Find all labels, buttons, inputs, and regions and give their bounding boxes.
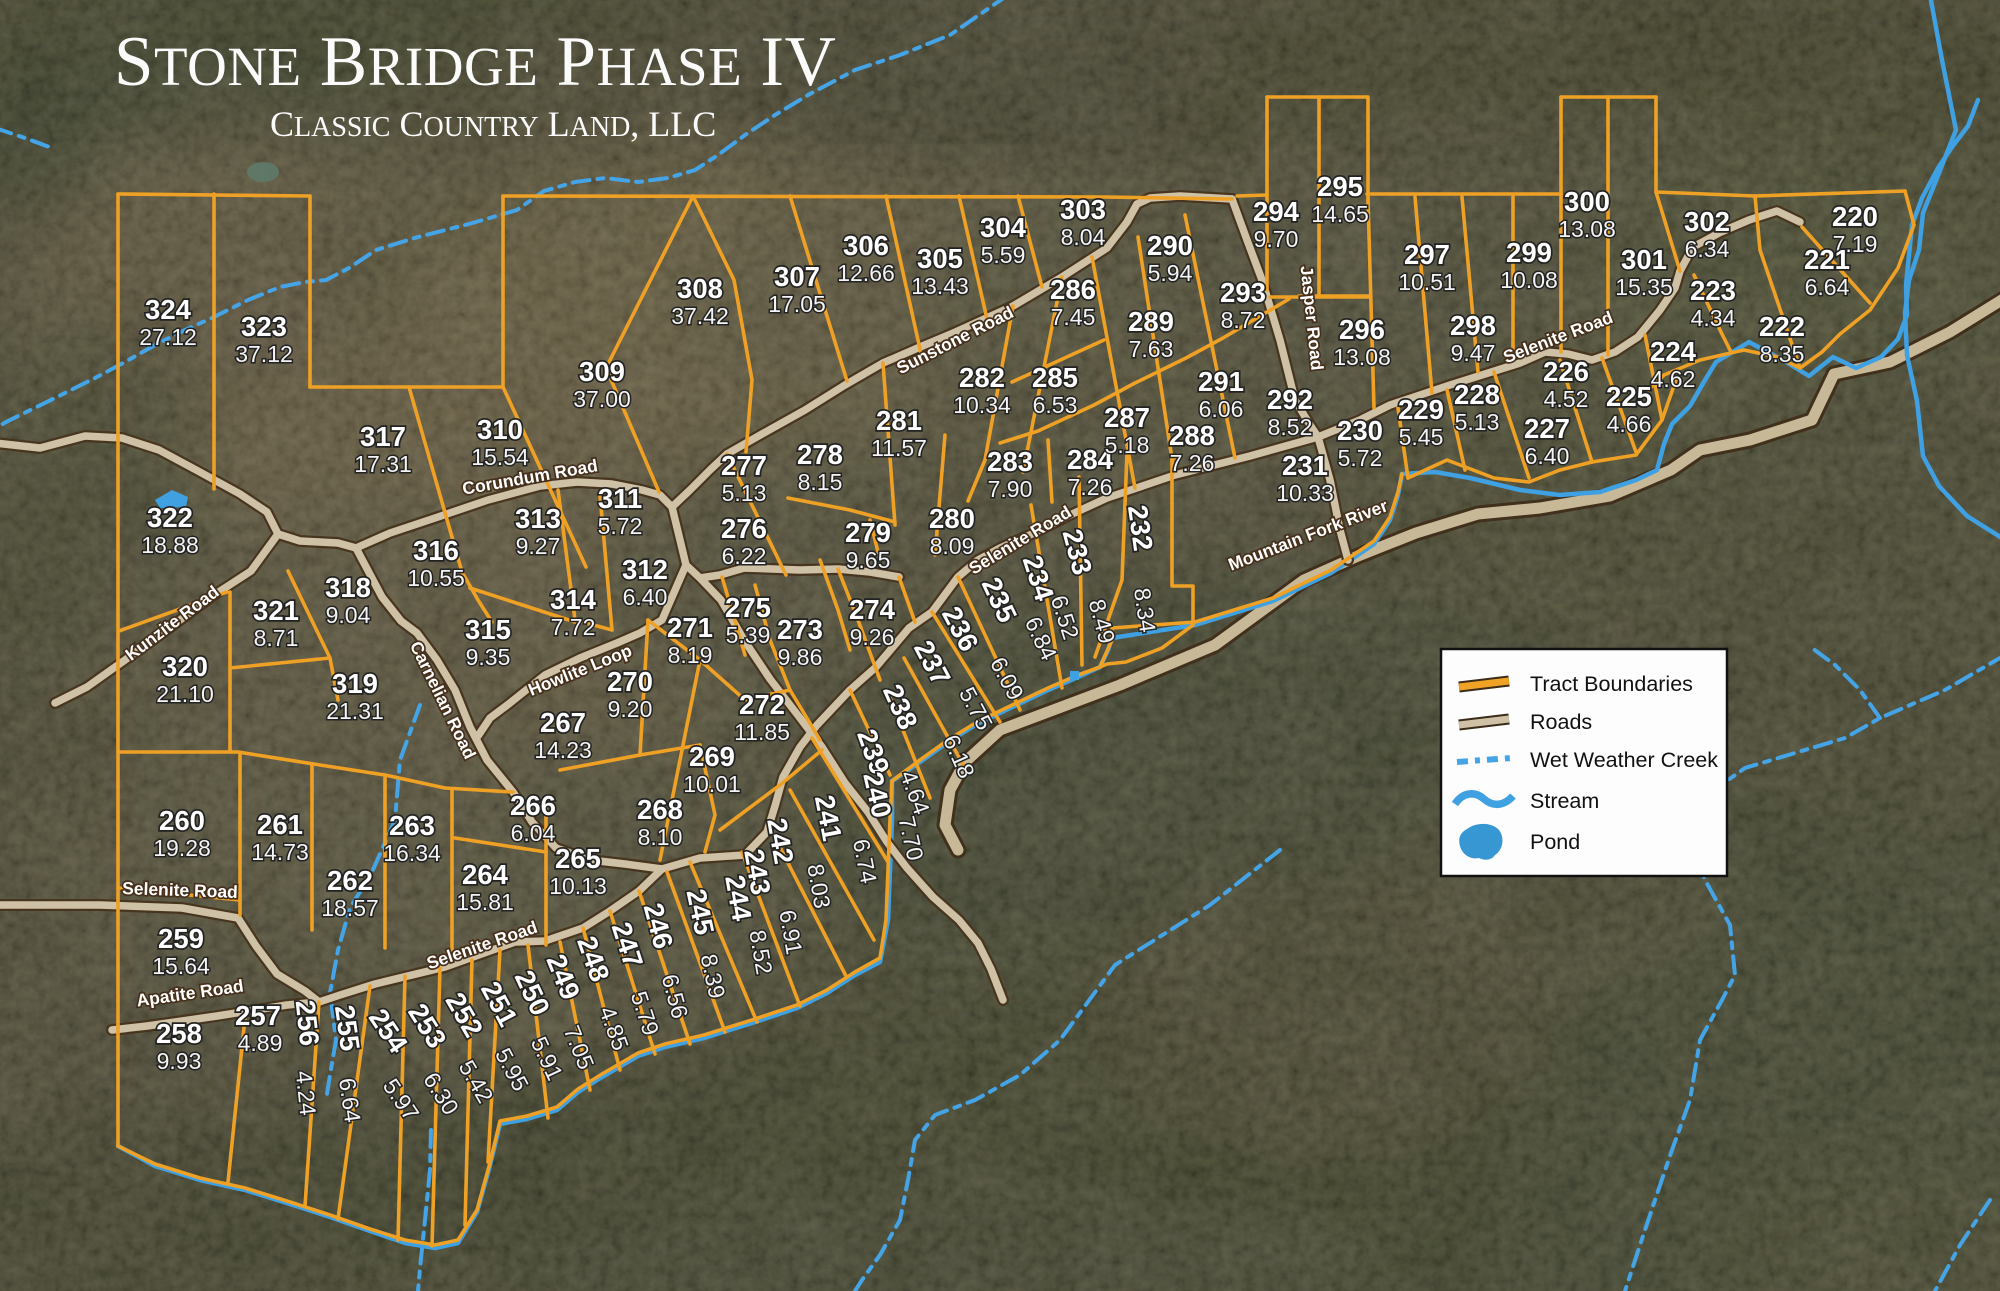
svg-text:260: 260 — [159, 805, 205, 836]
svg-text:304: 304 — [980, 212, 1027, 243]
svg-text:278: 278 — [797, 439, 843, 470]
svg-text:15.54: 15.54 — [471, 444, 529, 470]
svg-text:317: 317 — [360, 421, 406, 452]
svg-text:232: 232 — [1122, 503, 1159, 553]
svg-text:273: 273 — [777, 614, 823, 645]
svg-text:272: 272 — [739, 689, 785, 720]
svg-text:312: 312 — [622, 554, 668, 585]
svg-text:313: 313 — [515, 503, 561, 534]
svg-text:305: 305 — [917, 243, 963, 274]
svg-text:17.05: 17.05 — [768, 291, 826, 317]
svg-text:323: 323 — [241, 311, 287, 342]
svg-text:9.35: 9.35 — [466, 644, 511, 670]
svg-text:15.35: 15.35 — [1615, 274, 1673, 300]
svg-text:Selenite Road: Selenite Road — [122, 878, 238, 902]
svg-text:13.08: 13.08 — [1558, 216, 1616, 242]
svg-text:9.26: 9.26 — [850, 624, 895, 650]
svg-text:266: 266 — [510, 790, 556, 821]
svg-text:300: 300 — [1564, 186, 1610, 217]
svg-text:5.18: 5.18 — [1105, 432, 1150, 458]
svg-text:306: 306 — [843, 230, 889, 261]
svg-text:223: 223 — [1690, 275, 1736, 306]
svg-text:18.88: 18.88 — [141, 532, 199, 558]
svg-text:279: 279 — [845, 517, 891, 548]
svg-text:6.06: 6.06 — [1199, 396, 1244, 422]
svg-text:290: 290 — [1147, 230, 1193, 261]
svg-text:10.33: 10.33 — [1276, 480, 1334, 506]
svg-text:287: 287 — [1104, 402, 1150, 433]
svg-text:14.23: 14.23 — [534, 737, 592, 763]
svg-text:37.42: 37.42 — [671, 303, 729, 329]
svg-text:222: 222 — [1759, 311, 1805, 342]
svg-text:259: 259 — [158, 923, 204, 954]
svg-text:4.52: 4.52 — [1544, 386, 1589, 412]
svg-text:229: 229 — [1398, 394, 1444, 425]
svg-text:270: 270 — [607, 666, 653, 697]
svg-text:Pond: Pond — [1530, 830, 1580, 854]
svg-text:9.65: 9.65 — [846, 547, 891, 573]
svg-text:17.31: 17.31 — [354, 451, 412, 477]
svg-text:295: 295 — [1317, 171, 1363, 202]
svg-text:8.15: 8.15 — [798, 469, 843, 495]
svg-text:281: 281 — [876, 405, 922, 436]
svg-text:286: 286 — [1050, 274, 1096, 305]
svg-text:309: 309 — [579, 356, 625, 387]
svg-text:298: 298 — [1450, 310, 1496, 341]
svg-text:321: 321 — [253, 595, 299, 626]
svg-text:11.85: 11.85 — [734, 719, 790, 745]
svg-text:27.12: 27.12 — [139, 324, 197, 350]
svg-text:18.57: 18.57 — [321, 895, 379, 921]
svg-text:310: 310 — [477, 414, 523, 445]
svg-text:231: 231 — [1282, 450, 1328, 481]
svg-text:269: 269 — [689, 741, 735, 772]
svg-text:297: 297 — [1404, 239, 1450, 270]
svg-text:263: 263 — [389, 810, 435, 841]
svg-text:303: 303 — [1060, 194, 1106, 225]
svg-text:301: 301 — [1621, 244, 1667, 275]
svg-text:315: 315 — [465, 614, 511, 645]
svg-text:220: 220 — [1832, 201, 1878, 232]
svg-text:9.27: 9.27 — [516, 533, 561, 559]
svg-text:292: 292 — [1267, 384, 1313, 415]
svg-text:316: 316 — [413, 535, 459, 566]
svg-text:8.72: 8.72 — [1221, 307, 1266, 333]
svg-text:280: 280 — [929, 503, 975, 534]
svg-text:10.08: 10.08 — [1500, 267, 1558, 293]
svg-text:289: 289 — [1128, 306, 1174, 337]
svg-text:285: 285 — [1032, 362, 1078, 393]
svg-text:5.72: 5.72 — [1338, 445, 1383, 471]
svg-text:314: 314 — [550, 584, 597, 615]
svg-text:6.22: 6.22 — [722, 543, 767, 569]
svg-text:294: 294 — [1253, 196, 1300, 227]
svg-text:5.72: 5.72 — [598, 513, 643, 539]
svg-text:307: 307 — [774, 261, 820, 292]
svg-text:6.53: 6.53 — [1033, 392, 1078, 418]
svg-text:276: 276 — [721, 513, 767, 544]
svg-text:230: 230 — [1337, 415, 1383, 446]
svg-text:4.89: 4.89 — [238, 1030, 283, 1056]
svg-text:8.04: 8.04 — [1061, 224, 1106, 250]
svg-text:4.24: 4.24 — [291, 1069, 322, 1116]
svg-text:7.90: 7.90 — [988, 476, 1033, 502]
svg-text:302: 302 — [1684, 206, 1730, 237]
svg-text:7.45: 7.45 — [1051, 304, 1096, 330]
svg-text:6.40: 6.40 — [1525, 443, 1570, 469]
svg-text:7.26: 7.26 — [1068, 474, 1113, 500]
svg-text:268: 268 — [637, 794, 683, 825]
svg-text:5.13: 5.13 — [722, 480, 767, 506]
svg-text:5.39: 5.39 — [726, 622, 771, 648]
svg-text:16.34: 16.34 — [383, 840, 441, 866]
svg-text:Wet Weather Creek: Wet Weather Creek — [1530, 748, 1718, 772]
svg-text:10.13: 10.13 — [549, 873, 607, 899]
svg-text:9.47: 9.47 — [1451, 340, 1496, 366]
svg-text:7.63: 7.63 — [1129, 336, 1174, 362]
svg-text:258: 258 — [156, 1018, 202, 1049]
svg-text:4.34: 4.34 — [1691, 305, 1736, 331]
svg-text:14.73: 14.73 — [251, 839, 309, 865]
svg-text:324: 324 — [145, 294, 192, 325]
svg-text:267: 267 — [540, 707, 586, 738]
svg-text:14.65: 14.65 — [1311, 201, 1369, 227]
svg-text:318: 318 — [325, 572, 371, 603]
svg-text:299: 299 — [1506, 237, 1552, 268]
svg-text:11.57: 11.57 — [871, 435, 927, 461]
svg-text:296: 296 — [1339, 314, 1385, 345]
svg-text:274: 274 — [849, 594, 896, 625]
svg-text:6.40: 6.40 — [623, 584, 668, 610]
svg-text:227: 227 — [1524, 413, 1570, 444]
svg-text:291: 291 — [1198, 366, 1244, 397]
svg-text:255: 255 — [329, 1003, 366, 1053]
svg-text:15.81: 15.81 — [456, 889, 514, 915]
svg-text:8.19: 8.19 — [668, 642, 713, 668]
svg-text:271: 271 — [667, 612, 713, 643]
svg-text:226: 226 — [1543, 356, 1589, 387]
svg-text:275: 275 — [725, 592, 771, 623]
svg-text:8.10: 8.10 — [638, 824, 683, 850]
svg-text:10.51: 10.51 — [1398, 269, 1456, 295]
svg-text:21.31: 21.31 — [326, 698, 384, 724]
svg-text:224: 224 — [1650, 336, 1697, 367]
svg-text:8.35: 8.35 — [1760, 341, 1805, 367]
svg-text:322: 322 — [147, 502, 193, 533]
svg-text:221: 221 — [1804, 244, 1850, 275]
svg-text:311: 311 — [598, 483, 642, 514]
svg-text:Tract Boundaries: Tract Boundaries — [1530, 672, 1693, 696]
svg-text:15.64: 15.64 — [152, 953, 210, 979]
svg-text:5.59: 5.59 — [981, 242, 1026, 268]
svg-text:4.62: 4.62 — [1651, 366, 1696, 392]
svg-text:9.93: 9.93 — [157, 1048, 202, 1074]
svg-text:10.34: 10.34 — [953, 392, 1011, 418]
svg-text:19.28: 19.28 — [153, 835, 211, 861]
svg-text:265: 265 — [555, 843, 601, 874]
svg-text:8.09: 8.09 — [930, 533, 975, 559]
svg-text:Roads: Roads — [1530, 710, 1592, 734]
svg-text:9.20: 9.20 — [608, 696, 653, 722]
svg-text:308: 308 — [677, 273, 723, 304]
svg-text:288: 288 — [1169, 420, 1215, 451]
svg-text:257: 257 — [235, 1000, 281, 1031]
svg-text:7.72: 7.72 — [551, 614, 596, 640]
svg-text:9.70: 9.70 — [1254, 226, 1299, 252]
svg-text:5.94: 5.94 — [1148, 260, 1193, 286]
svg-text:256: 256 — [290, 999, 326, 1048]
svg-text:264: 264 — [462, 859, 509, 890]
svg-text:10.01: 10.01 — [683, 771, 741, 797]
svg-text:6.04: 6.04 — [511, 820, 556, 846]
svg-text:13.08: 13.08 — [1333, 344, 1391, 370]
svg-text:37.12: 37.12 — [235, 341, 293, 367]
svg-text:Stream: Stream — [1530, 789, 1599, 813]
svg-text:8.71: 8.71 — [254, 625, 299, 651]
svg-text:5.13: 5.13 — [1455, 409, 1500, 435]
svg-text:277: 277 — [721, 450, 767, 481]
svg-text:261: 261 — [257, 809, 303, 840]
svg-text:225: 225 — [1606, 381, 1652, 412]
svg-text:320: 320 — [162, 651, 208, 682]
svg-text:319: 319 — [332, 668, 378, 699]
svg-text:12.66: 12.66 — [837, 260, 895, 286]
svg-text:262: 262 — [327, 865, 373, 896]
svg-text:7.26: 7.26 — [1170, 450, 1215, 476]
svg-text:4.66: 4.66 — [1607, 411, 1652, 437]
svg-text:6.64: 6.64 — [1805, 274, 1850, 300]
svg-text:37.00: 37.00 — [573, 386, 631, 412]
svg-text:282: 282 — [959, 362, 1005, 393]
svg-text:9.86: 9.86 — [778, 644, 823, 670]
svg-text:13.43: 13.43 — [911, 273, 969, 299]
svg-text:6.34: 6.34 — [1685, 236, 1730, 262]
svg-text:8.52: 8.52 — [1268, 414, 1313, 440]
svg-text:10.55: 10.55 — [407, 565, 465, 591]
svg-text:293: 293 — [1220, 277, 1266, 308]
svg-text:21.10: 21.10 — [156, 681, 214, 707]
svg-text:228: 228 — [1454, 379, 1500, 410]
svg-text:5.45: 5.45 — [1399, 424, 1444, 450]
svg-text:283: 283 — [987, 446, 1033, 477]
svg-text:9.04: 9.04 — [326, 602, 371, 628]
